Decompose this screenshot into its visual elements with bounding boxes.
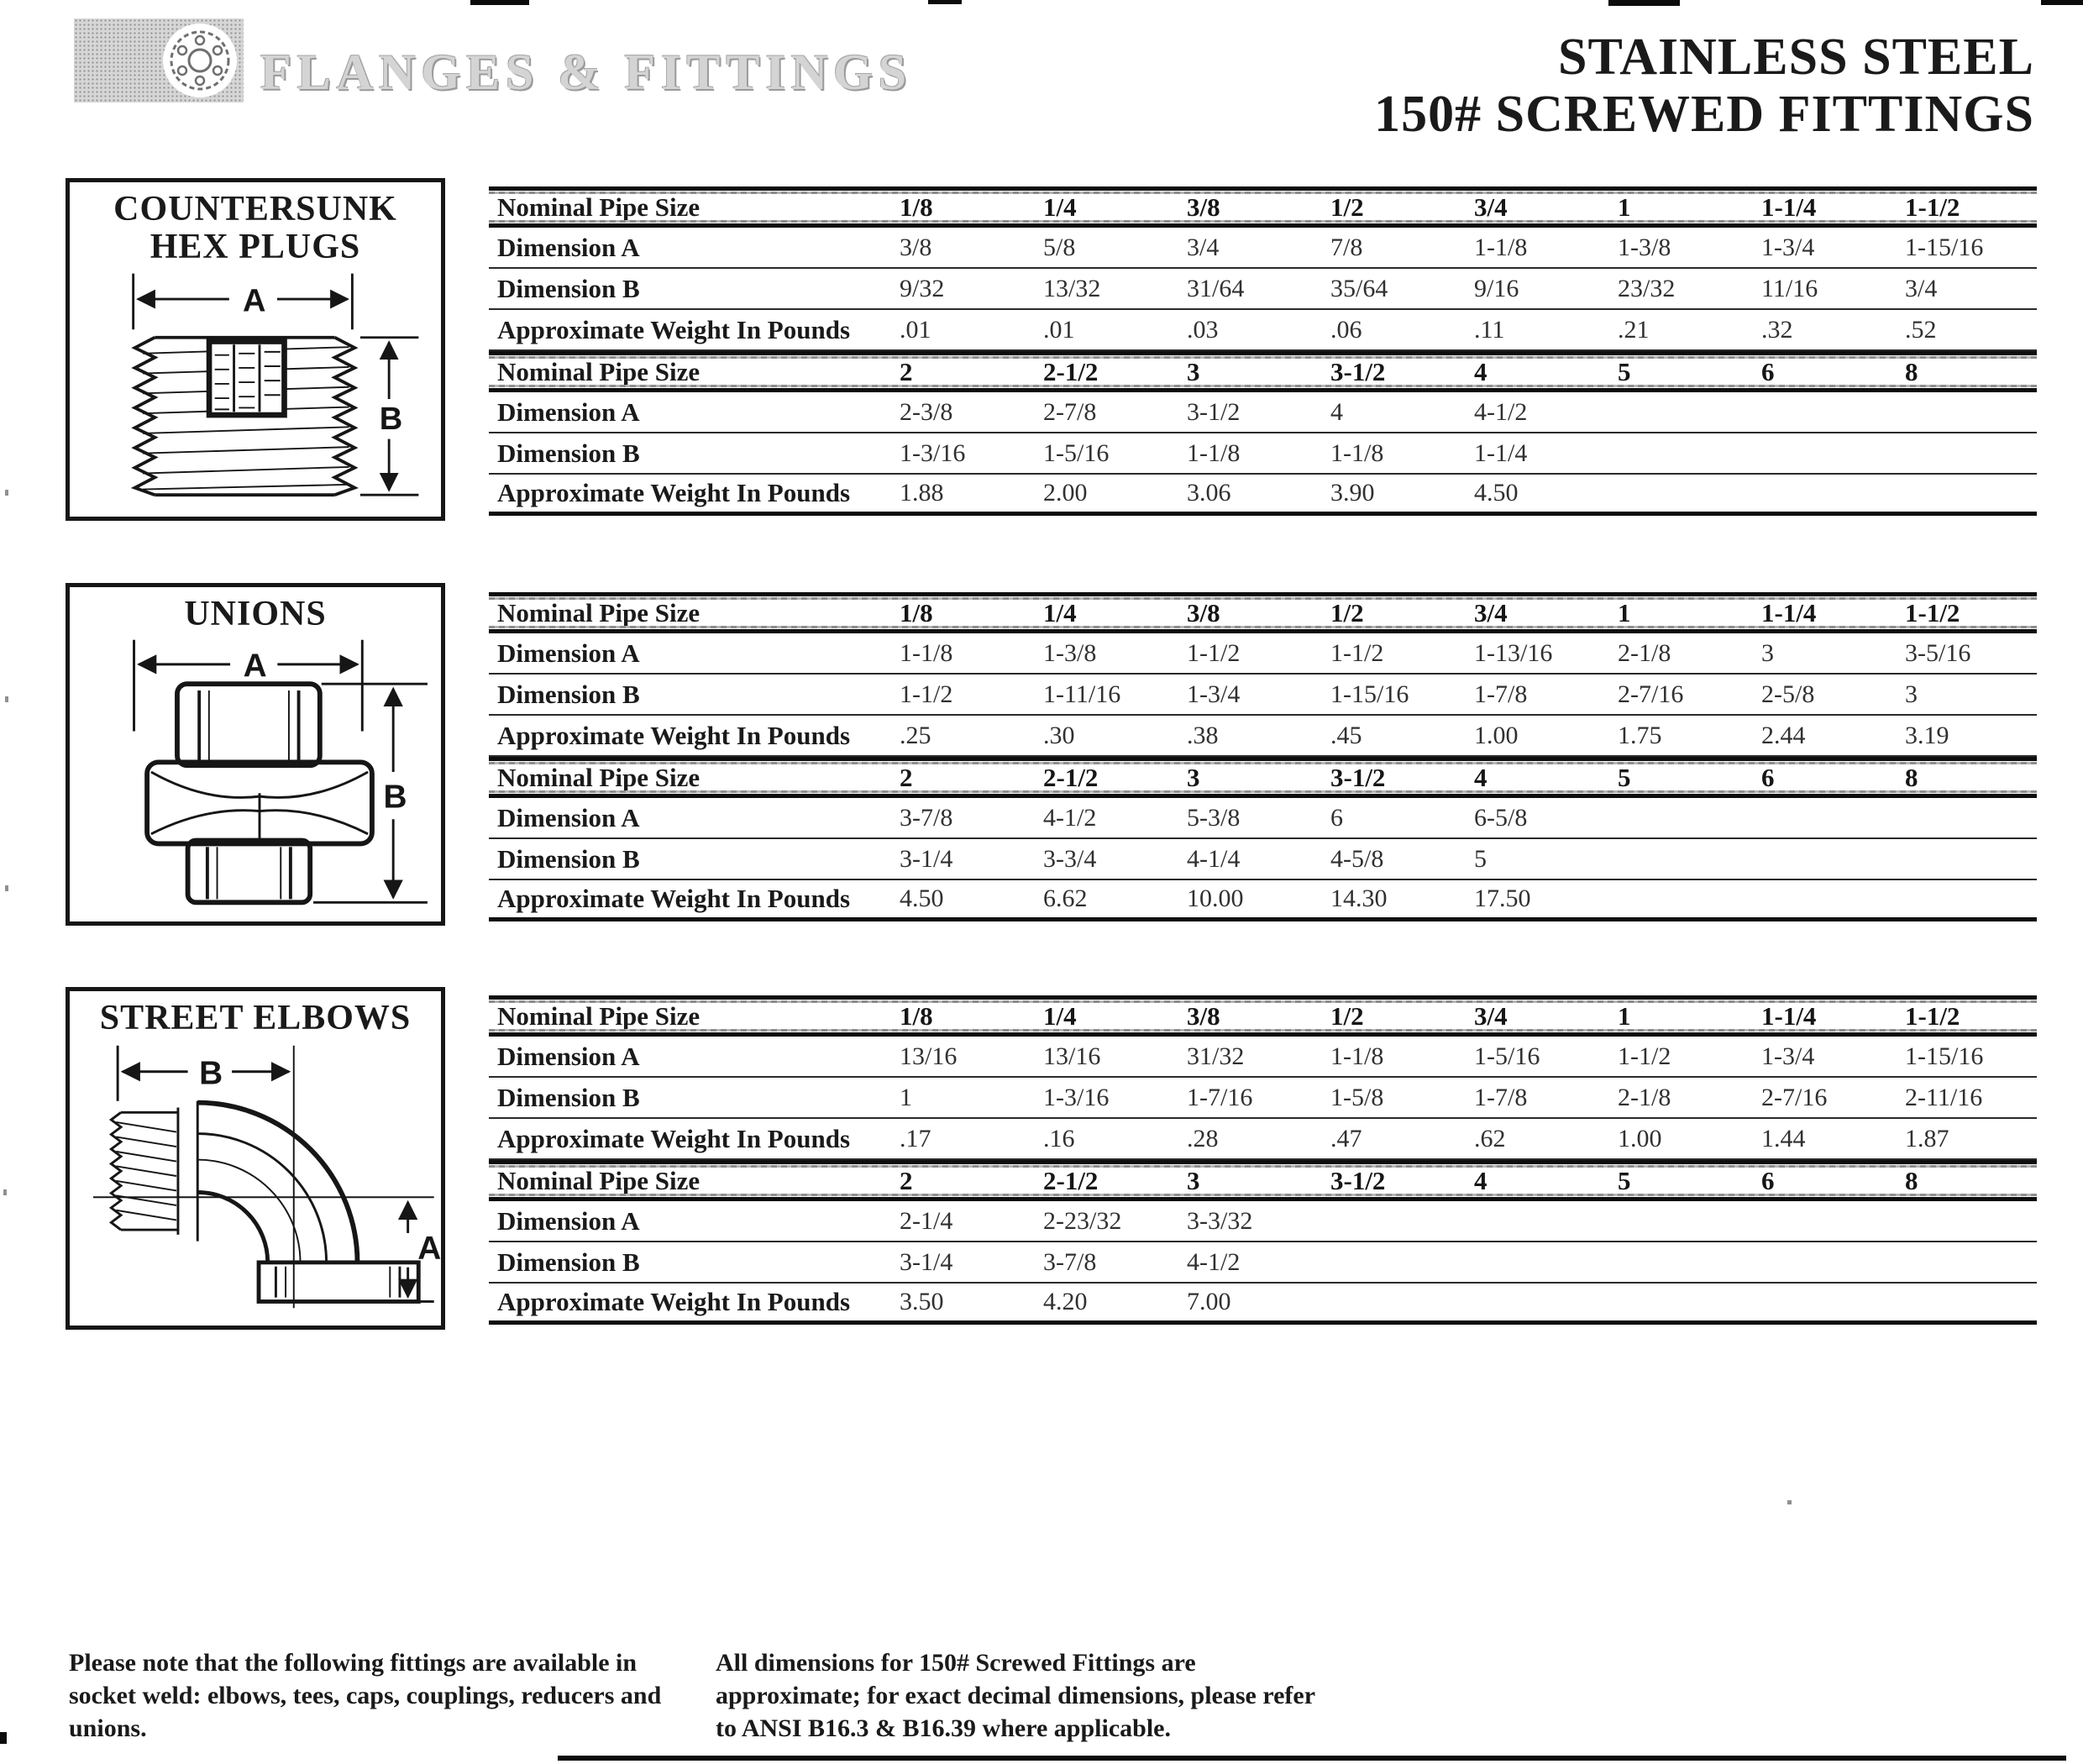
- table-cell: .11: [1462, 316, 1606, 344]
- table-cell: 31/32: [1175, 1042, 1319, 1071]
- table-cell: .38: [1175, 722, 1319, 750]
- pipe-size-value: 1: [1606, 598, 1750, 628]
- table-cell: 1-7/16: [1175, 1084, 1319, 1112]
- pipe-size-value: 8: [1893, 1166, 2037, 1196]
- row-label: Approximate Weight In Pounds: [489, 315, 888, 345]
- table-cell: 6-5/8: [1462, 804, 1606, 832]
- table-cell: 13/16: [888, 1042, 1031, 1071]
- table-cell: 7.00: [1175, 1288, 1319, 1316]
- countersunk-hex-plugs-box: COUNTERSUNK HEX PLUGS A: [66, 178, 445, 521]
- table-cell: 1-1/8: [888, 639, 1031, 668]
- table-cell: 6: [1319, 804, 1462, 832]
- row-label: Dimension B: [489, 438, 888, 469]
- pipe-size-value: 1-1/2: [1893, 1001, 2037, 1032]
- table-cell: .28: [1175, 1125, 1319, 1153]
- table-cell: 2-7/16: [1750, 1084, 1893, 1112]
- weight-row: Approximate Weight In Pounds3.504.207.00: [489, 1284, 2037, 1325]
- table-cell: 4.50: [888, 885, 1031, 913]
- table-cell: 1.87: [1893, 1125, 2037, 1153]
- table-cell: 1.00: [1606, 1125, 1750, 1153]
- pipe-size-value: 1-1/4: [1750, 598, 1893, 628]
- row-label: Dimension A: [489, 638, 888, 669]
- section-title: COUNTERSUNK HEX PLUGS: [70, 182, 441, 267]
- section-title: STREET ELBOWS: [70, 991, 441, 1037]
- pipe-size-value: 1-1/4: [1750, 1001, 1893, 1032]
- pipe-size-value: 2-1/2: [1031, 1166, 1175, 1196]
- weight-row: Approximate Weight In Pounds4.506.6210.0…: [489, 880, 2037, 921]
- scan-artifact: [928, 0, 962, 4]
- pipe-size-value: 8: [1893, 357, 2037, 387]
- table-cell: 3-1/4: [888, 845, 1031, 874]
- table-cell: 3.50: [888, 1288, 1031, 1316]
- table-cell: .52: [1893, 316, 2037, 344]
- unions-box: UNIONS A: [66, 583, 445, 926]
- weight-row: Approximate Weight In Pounds.25.30.38.45…: [489, 716, 2037, 757]
- table-cell: 1-5/16: [1462, 1042, 1606, 1071]
- table-cell: 7/8: [1319, 234, 1462, 262]
- table-cell: 1-1/8: [1319, 1042, 1462, 1071]
- pipe-size-value: 1: [1606, 192, 1750, 223]
- scan-artifact: [558, 1756, 2066, 1761]
- table-cell: 2-23/32: [1031, 1207, 1175, 1236]
- dimension-a-row: Dimension A3/85/83/47/81-1/81-3/81-3/41-…: [489, 228, 2037, 269]
- pipe-size-value: 5: [1606, 763, 1750, 793]
- row-label: Approximate Weight In Pounds: [489, 478, 888, 508]
- pipe-size-header-row: Nominal Pipe Size1/81/43/81/23/411-1/41-…: [489, 186, 2037, 228]
- pipe-size-value: 1-1/4: [1750, 192, 1893, 223]
- table-cell: 4: [1319, 398, 1462, 427]
- table-cell: 1-3/16: [1031, 1084, 1175, 1112]
- table-cell: 1-15/16: [1893, 234, 2037, 262]
- dimension-label-b: B: [199, 1056, 223, 1092]
- pipe-size-value: 1/2: [1319, 598, 1462, 628]
- pipe-size-header-row: Nominal Pipe Size1/81/43/81/23/411-1/41-…: [489, 592, 2037, 633]
- pipe-size-value: 3: [1175, 1166, 1319, 1196]
- pipe-size-header-row: Nominal Pipe Size22-1/233-1/24568: [489, 351, 2037, 392]
- company-logo: [74, 18, 244, 102]
- scan-artifact: [5, 696, 8, 702]
- dimension-b-row: Dimension B3-1/43-3/44-1/44-5/85: [489, 839, 2037, 880]
- table-cell: 1-3/8: [1031, 639, 1175, 668]
- pipe-size-value: 2-1/2: [1031, 357, 1175, 387]
- pipe-size-value: 4: [1462, 357, 1606, 387]
- table-cell: 3-3/4: [1031, 845, 1175, 874]
- table-cell: 13/32: [1031, 275, 1175, 303]
- row-label: Dimension B: [489, 1083, 888, 1113]
- row-label: Dimension A: [489, 233, 888, 263]
- table-cell: 17.50: [1462, 885, 1606, 913]
- table-cell: 1-3/16: [888, 439, 1031, 468]
- table-cell: 1-1/8: [1462, 234, 1606, 262]
- pipe-size-value: 2-1/2: [1031, 763, 1175, 793]
- pipe-size-value: 6: [1750, 1166, 1893, 1196]
- table-cell: .25: [888, 722, 1031, 750]
- table-cell: 1-13/16: [1462, 639, 1606, 668]
- row-label: Dimension B: [489, 1247, 888, 1278]
- pipe-size-value: 1-1/2: [1893, 598, 2037, 628]
- dimension-label-b: B: [384, 780, 407, 816]
- pipe-size-value: 3/4: [1462, 598, 1606, 628]
- brand-title: FLANGES & FITTINGS: [260, 44, 912, 102]
- section-title: UNIONS: [70, 587, 441, 633]
- row-label: Approximate Weight In Pounds: [489, 1287, 888, 1317]
- table-cell: 2-11/16: [1893, 1084, 2037, 1112]
- table-cell: 1-1/8: [1175, 439, 1319, 468]
- table-cell: .45: [1319, 722, 1462, 750]
- table-cell: 1.75: [1606, 722, 1750, 750]
- table-cell: .01: [888, 316, 1031, 344]
- pipe-size-value: 3: [1175, 763, 1319, 793]
- table-cell: 3/4: [1893, 275, 2037, 303]
- table-cell: .21: [1606, 316, 1750, 344]
- pipe-size-value: 1/4: [1031, 192, 1175, 223]
- table-cell: 1-7/8: [1462, 1084, 1606, 1112]
- scan-artifact: [470, 0, 529, 5]
- table-cell: 23/32: [1606, 275, 1750, 303]
- pipe-size-value: 4: [1462, 763, 1606, 793]
- pipe-size-value: 1/2: [1319, 1001, 1462, 1032]
- dimension-a-row: Dimension A2-1/42-23/323-3/32: [489, 1201, 2037, 1242]
- pipe-size-value: 1-1/2: [1893, 192, 2037, 223]
- scan-artifact: [3, 1189, 7, 1195]
- pipe-size-value: 3/4: [1462, 192, 1606, 223]
- table-cell: 1-5/8: [1319, 1084, 1462, 1112]
- table-cell: 3-5/16: [1893, 639, 2037, 668]
- row-label: Nominal Pipe Size: [489, 357, 888, 387]
- table-cell: 1-5/16: [1031, 439, 1175, 468]
- table-cell: 1-1/4: [1462, 439, 1606, 468]
- table-cell: 2.00: [1031, 479, 1175, 507]
- table-cell: 3-3/32: [1175, 1207, 1319, 1236]
- countersunk-hex-plugs-table: Nominal Pipe Size1/81/43/81/23/411-1/41-…: [489, 186, 2037, 516]
- dimension-a-row: Dimension A3-7/84-1/25-3/866-5/8: [489, 798, 2037, 839]
- scan-artifact: [5, 885, 8, 891]
- table-cell: 14.30: [1319, 885, 1462, 913]
- table-cell: 11/16: [1750, 275, 1893, 303]
- ansi-note: All dimensions for 150# Screwed Fittings…: [716, 1646, 1337, 1745]
- row-label: Dimension B: [489, 680, 888, 710]
- table-cell: .06: [1319, 316, 1462, 344]
- pipe-size-value: 1/8: [888, 192, 1031, 223]
- pipe-size-value: 3/8: [1175, 192, 1319, 223]
- table-cell: 1.00: [1462, 722, 1606, 750]
- dimension-label-a: A: [243, 283, 265, 318]
- table-cell: 3.90: [1319, 479, 1462, 507]
- table-cell: 1-1/2: [1175, 639, 1319, 668]
- table-cell: 1-11/16: [1031, 680, 1175, 709]
- table-cell: 2-1/8: [1606, 1084, 1750, 1112]
- weight-row: Approximate Weight In Pounds1.882.003.06…: [489, 475, 2037, 516]
- pipe-size-value: 3-1/2: [1319, 357, 1462, 387]
- scan-artifact: [5, 490, 8, 496]
- pipe-size-value: 1/4: [1031, 598, 1175, 628]
- pipe-size-value: 5: [1606, 1166, 1750, 1196]
- row-label: Dimension B: [489, 844, 888, 874]
- table-cell: 1-3/4: [1175, 680, 1319, 709]
- table-cell: 1-3/4: [1750, 234, 1893, 262]
- table-cell: 4-1/2: [1462, 398, 1606, 427]
- table-cell: 1-3/8: [1606, 234, 1750, 262]
- street-elbows-box: STREET ELBOWS B: [66, 987, 445, 1330]
- flange-icon: [154, 12, 246, 109]
- table-cell: 1-1/8: [1319, 439, 1462, 468]
- page-title-line2: 150# SCREWED FITTINGS: [1374, 86, 2034, 143]
- scan-artifact: [0, 1732, 7, 1744]
- table-cell: 2-1/4: [888, 1207, 1031, 1236]
- pipe-size-value: 3-1/2: [1319, 763, 1462, 793]
- pipe-size-value: 2: [888, 763, 1031, 793]
- table-cell: 31/64: [1175, 275, 1319, 303]
- table-cell: 9/16: [1462, 275, 1606, 303]
- pipe-size-value: 1: [1606, 1001, 1750, 1032]
- dimension-a-row: Dimension A1-1/81-3/81-1/21-1/21-13/162-…: [489, 633, 2037, 675]
- pipe-size-value: 2: [888, 357, 1031, 387]
- scan-artifact: [1787, 1500, 1792, 1504]
- table-cell: .16: [1031, 1125, 1175, 1153]
- table-cell: .17: [888, 1125, 1031, 1153]
- pipe-size-value: 1/8: [888, 598, 1031, 628]
- dimension-label-a: A: [244, 648, 267, 685]
- dimension-a-row: Dimension A2-3/82-7/83-1/244-1/2: [489, 392, 2037, 433]
- table-cell: 1.44: [1750, 1125, 1893, 1153]
- table-cell: 1-1/2: [888, 680, 1031, 709]
- table-cell: 4-5/8: [1319, 845, 1462, 874]
- table-cell: 2-3/8: [888, 398, 1031, 427]
- table-cell: 2-1/8: [1606, 639, 1750, 668]
- table-cell: 4-1/4: [1175, 845, 1319, 874]
- row-label: Nominal Pipe Size: [489, 763, 888, 793]
- scan-artifact: [1608, 0, 1680, 6]
- table-cell: 6.62: [1031, 885, 1175, 913]
- table-cell: 5: [1462, 845, 1606, 874]
- table-cell: 2-7/16: [1606, 680, 1750, 709]
- table-cell: 3-1/4: [888, 1248, 1031, 1277]
- row-label: Nominal Pipe Size: [489, 1166, 888, 1196]
- page-title: STAINLESS STEEL 150# SCREWED FITTINGS: [1374, 29, 2034, 143]
- weight-row: Approximate Weight In Pounds.01.01.03.06…: [489, 310, 2037, 351]
- pipe-size-value: 1/4: [1031, 1001, 1175, 1032]
- table-cell: 3-7/8: [888, 804, 1031, 832]
- dimension-a-row: Dimension A13/1613/1631/321-1/81-5/161-1…: [489, 1037, 2037, 1078]
- scan-artifact: [2041, 0, 2083, 5]
- row-label: Approximate Weight In Pounds: [489, 1124, 888, 1154]
- table-cell: 1.88: [888, 479, 1031, 507]
- row-label: Dimension A: [489, 1206, 888, 1236]
- pipe-size-header-row: Nominal Pipe Size22-1/233-1/24568: [489, 1160, 2037, 1201]
- table-cell: .62: [1462, 1125, 1606, 1153]
- table-cell: 3-7/8: [1031, 1248, 1175, 1277]
- table-cell: 13/16: [1031, 1042, 1175, 1071]
- table-cell: 1-15/16: [1893, 1042, 2037, 1071]
- table-cell: 5-3/8: [1175, 804, 1319, 832]
- table-cell: .03: [1175, 316, 1319, 344]
- dimension-b-row: Dimension B9/3213/3231/6435/649/1623/321…: [489, 269, 2037, 310]
- table-cell: 3/4: [1175, 234, 1319, 262]
- table-cell: 3: [1893, 680, 2037, 709]
- row-label: Nominal Pipe Size: [489, 1001, 888, 1032]
- table-cell: 1: [888, 1084, 1031, 1112]
- table-cell: 4.50: [1462, 479, 1606, 507]
- street-elbows-table: Nominal Pipe Size1/81/43/81/23/411-1/41-…: [489, 995, 2037, 1325]
- pipe-size-value: 3: [1175, 357, 1319, 387]
- row-label: Approximate Weight In Pounds: [489, 721, 888, 751]
- hex-plug-diagram: A B: [70, 267, 449, 515]
- table-cell: 1-15/16: [1319, 680, 1462, 709]
- table-cell: 3-1/2: [1175, 398, 1319, 427]
- dimension-b-row: Dimension B1-1/21-11/161-3/41-15/161-7/8…: [489, 675, 2037, 716]
- pipe-size-value: 1/8: [888, 1001, 1031, 1032]
- pipe-size-value: 3/4: [1462, 1001, 1606, 1032]
- table-cell: 1-3/4: [1750, 1042, 1893, 1071]
- table-cell: 3.19: [1893, 722, 2037, 750]
- row-label: Approximate Weight In Pounds: [489, 884, 888, 914]
- pipe-size-header-row: Nominal Pipe Size22-1/233-1/24568: [489, 757, 2037, 798]
- union-diagram: A B: [70, 633, 449, 911]
- table-cell: 1-1/2: [1319, 639, 1462, 668]
- dimension-label-b: B: [380, 402, 402, 437]
- row-label: Dimension A: [489, 803, 888, 833]
- dimension-label-a: A: [417, 1231, 441, 1267]
- unions-table: Nominal Pipe Size1/81/43/81/23/411-1/41-…: [489, 592, 2037, 921]
- dimension-b-row: Dimension B11-3/161-7/161-5/81-7/82-1/82…: [489, 1078, 2037, 1119]
- pipe-size-value: 6: [1750, 763, 1893, 793]
- row-label: Dimension A: [489, 1042, 888, 1072]
- table-cell: .32: [1750, 316, 1893, 344]
- pipe-size-value: 2: [888, 1166, 1031, 1196]
- row-label: Dimension A: [489, 397, 888, 428]
- table-cell: 4-1/2: [1175, 1248, 1319, 1277]
- table-cell: 3.06: [1175, 479, 1319, 507]
- dimension-b-row: Dimension B1-3/161-5/161-1/81-1/81-1/4: [489, 433, 2037, 475]
- socket-weld-note: Please note that the following fittings …: [69, 1646, 677, 1745]
- table-cell: .01: [1031, 316, 1175, 344]
- table-cell: .30: [1031, 722, 1175, 750]
- pipe-size-header-row: Nominal Pipe Size1/81/43/81/23/411-1/41-…: [489, 995, 2037, 1037]
- dimension-b-row: Dimension B3-1/43-7/84-1/2: [489, 1242, 2037, 1284]
- pipe-size-value: 6: [1750, 357, 1893, 387]
- table-cell: 2-7/8: [1031, 398, 1175, 427]
- row-label: Nominal Pipe Size: [489, 598, 888, 628]
- pipe-size-value: 3-1/2: [1319, 1166, 1462, 1196]
- table-cell: 4.20: [1031, 1288, 1175, 1316]
- table-cell: 1-7/8: [1462, 680, 1606, 709]
- pipe-size-value: 4: [1462, 1166, 1606, 1196]
- table-cell: 2.44: [1750, 722, 1893, 750]
- pipe-size-value: 3/8: [1175, 598, 1319, 628]
- table-cell: 10.00: [1175, 885, 1319, 913]
- row-label: Dimension B: [489, 274, 888, 304]
- pipe-size-value: 5: [1606, 357, 1750, 387]
- row-label: Nominal Pipe Size: [489, 192, 888, 223]
- table-cell: .47: [1319, 1125, 1462, 1153]
- weight-row: Approximate Weight In Pounds.17.16.28.47…: [489, 1119, 2037, 1160]
- table-cell: 35/64: [1319, 275, 1462, 303]
- table-cell: 5/8: [1031, 234, 1175, 262]
- table-cell: 2-5/8: [1750, 680, 1893, 709]
- street-elbow-diagram: B A: [70, 1037, 449, 1315]
- table-cell: 9/32: [888, 275, 1031, 303]
- pipe-size-value: 3/8: [1175, 1001, 1319, 1032]
- table-cell: 3: [1750, 639, 1893, 668]
- page-title-line1: STAINLESS STEEL: [1374, 29, 2034, 86]
- table-cell: 1-1/2: [1606, 1042, 1750, 1071]
- table-cell: 3/8: [888, 234, 1031, 262]
- pipe-size-value: 8: [1893, 763, 2037, 793]
- table-cell: 4-1/2: [1031, 804, 1175, 832]
- pipe-size-value: 1/2: [1319, 192, 1462, 223]
